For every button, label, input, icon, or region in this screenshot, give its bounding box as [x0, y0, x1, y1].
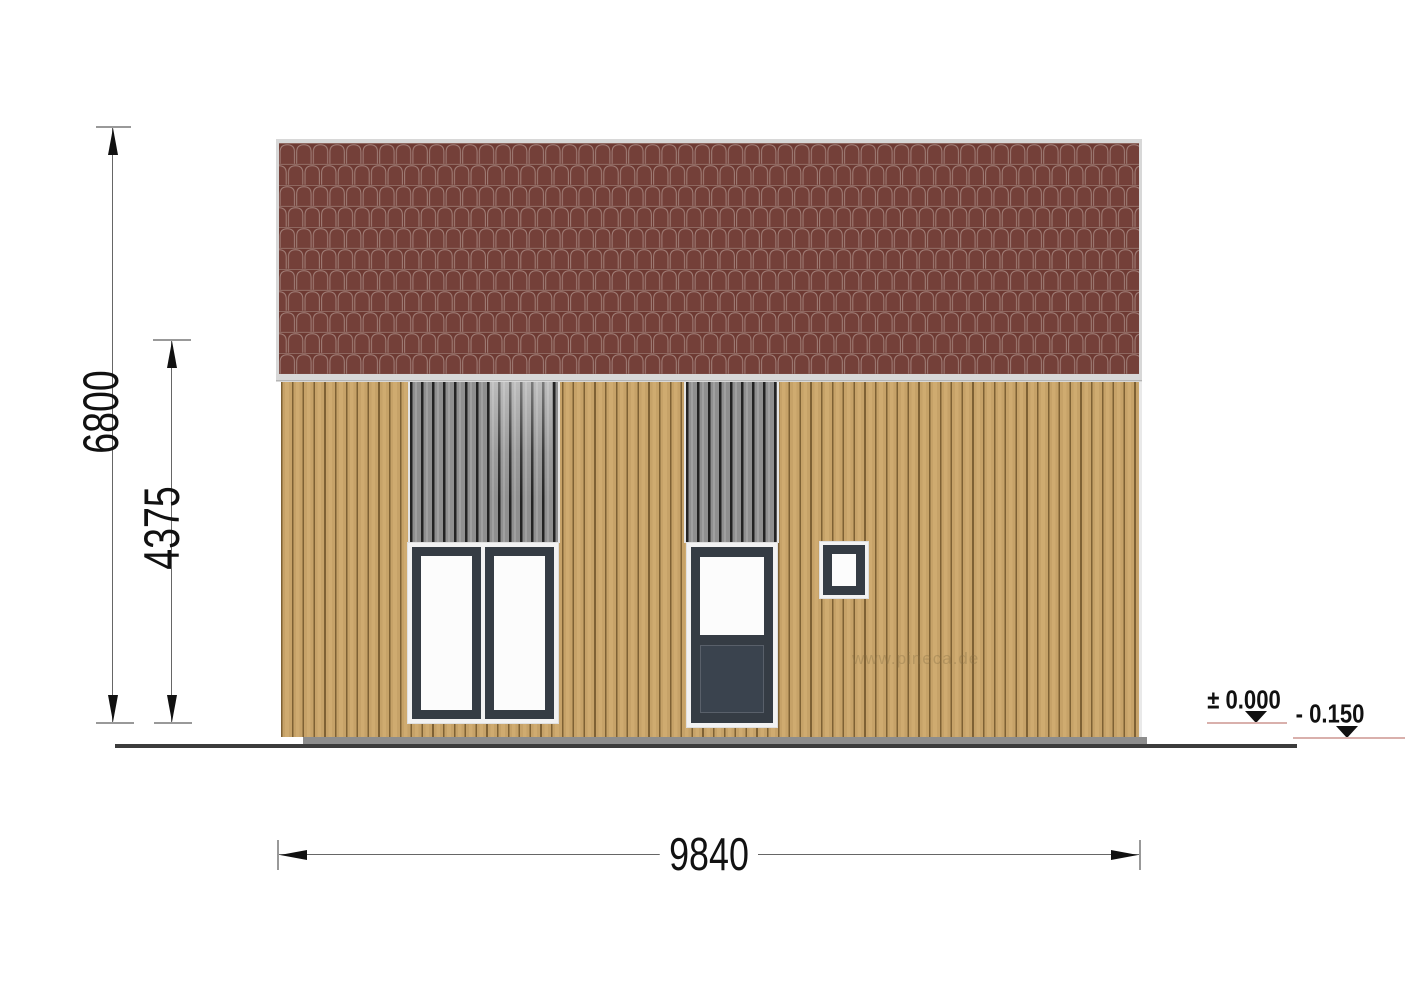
ground-line: [115, 744, 1297, 748]
panel-reflection: [490, 382, 552, 502]
dim-arrow-left-icon: [280, 850, 307, 860]
recess-panel-door: [684, 382, 779, 543]
window-pair: [408, 543, 558, 723]
dim-total-width-tick-right: [1139, 840, 1141, 870]
roof-fascia-edge: [276, 380, 1142, 381]
dim-arrow-right-icon: [1111, 850, 1138, 860]
door-glass: [700, 557, 764, 635]
window-pair-frame: [412, 547, 554, 719]
door-frame: [691, 547, 773, 723]
level-floor-line: [1207, 722, 1287, 724]
dim-arrow-up-icon: [108, 128, 118, 155]
watermark: www.pineca.de: [852, 649, 979, 669]
dim-arrow-up-icon: [167, 341, 177, 368]
recess-panel-windows: [408, 382, 560, 543]
level-ground-label: - 0.150: [1296, 699, 1365, 730]
dim-arrow-down-icon: [108, 695, 118, 722]
level-floor-label: ± 0.000: [1207, 685, 1281, 716]
dim-wall-height-label: 4375: [133, 486, 191, 569]
dim-arrow-down-icon: [167, 695, 177, 722]
window-left-glass: [421, 556, 472, 710]
roof-tiles-texture: [279, 143, 1139, 374]
dim-wall-height-tick-bottom: [154, 722, 192, 724]
small-window: [820, 542, 868, 598]
small-window-glass: [832, 554, 856, 586]
dim-total-height-tick-bottom: [96, 722, 134, 724]
door-bottom-panel: [700, 645, 764, 713]
door: [687, 543, 777, 727]
dim-total-width-label: 9840: [660, 827, 759, 881]
window-divider: [481, 547, 485, 719]
level-ground-line: [1293, 737, 1405, 739]
small-window-frame: [823, 545, 865, 595]
window-right-glass: [494, 556, 545, 710]
dim-total-height-label: 6800: [72, 370, 130, 453]
elevation-drawing-page: { "dimensions": { "total_height": "6800"…: [0, 0, 1415, 1000]
dim-total-width-tick-left: [277, 840, 279, 870]
